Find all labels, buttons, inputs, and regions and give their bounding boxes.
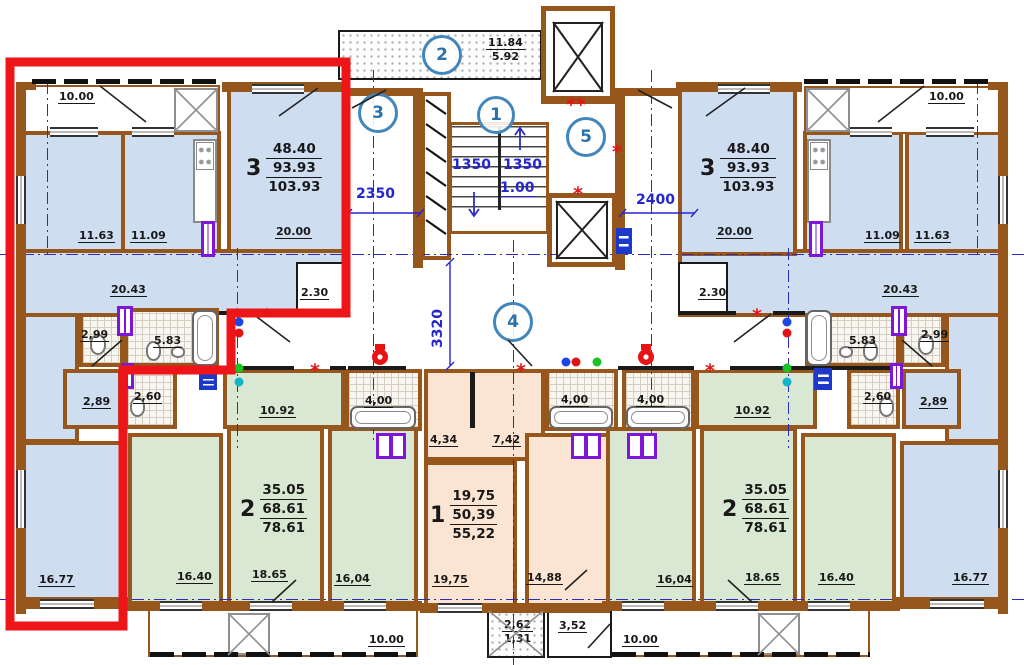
stair-dimension: 1350: [503, 157, 542, 173]
room-label: 20.43: [882, 283, 919, 297]
bathtub-icon-right2: [626, 406, 690, 429]
bathtub-icon-right: [806, 310, 832, 366]
right3-balcony-wardrobe: [806, 88, 850, 132]
room-label: 10.92: [259, 404, 296, 418]
star-marker: *: [752, 311, 762, 321]
window: [50, 127, 98, 137]
star-marker: *: [705, 366, 715, 376]
partition-left-lower-a: [124, 366, 294, 370]
hydrant-icon: [372, 344, 388, 365]
double-star-marker: **: [566, 100, 586, 110]
floor-plan: 10.00 11.63 11.09 20.00 20.43 2.30 2,99 …: [0, 0, 1024, 665]
star-marker: *: [573, 189, 583, 199]
room-label: 5.83: [848, 334, 877, 348]
window: [16, 470, 26, 528]
apartment-summary-left2: 2 35.05 68.61 78.61: [240, 481, 307, 537]
star-marker: *: [310, 366, 320, 376]
room-label: 10.92: [734, 404, 771, 418]
window: [998, 470, 1008, 528]
partition-right-vestibule-b: [678, 311, 736, 315]
door-marker: [571, 433, 601, 459]
window: [40, 599, 94, 609]
room-label: 7,42: [492, 433, 521, 447]
partition-right-lower-b: [678, 366, 694, 370]
dimension-3320: 3320: [430, 309, 446, 348]
door-marker: [117, 306, 133, 336]
left3-vestibule: [219, 313, 346, 370]
room-label: 18.65: [251, 568, 288, 582]
window: [718, 84, 770, 94]
apartment-summary-right2: 2 35.05 68.61 78.61: [722, 481, 789, 537]
axis-line-vertical-5: [788, 248, 789, 448]
core-wall-top-right: [615, 88, 681, 96]
awning-top-left: [32, 79, 220, 84]
window: [160, 601, 202, 611]
bathtub-icon-left: [192, 310, 218, 366]
room-label: 4,34: [429, 433, 458, 447]
outer-wall-left: [16, 82, 26, 614]
stair-level-mark: 1.00: [500, 180, 535, 197]
window: [132, 127, 174, 137]
axis-line-vertical-7: [977, 82, 978, 254]
bathtub-icon-center: [549, 406, 613, 429]
section-circle-1: 1: [477, 96, 515, 134]
room-label: 10.00: [58, 90, 95, 104]
bathtub-icon-left2: [350, 406, 416, 429]
room-label: 16.77: [952, 571, 989, 585]
room-label: 4,00: [560, 393, 589, 407]
room-label: 11.63: [914, 229, 951, 243]
room-label: 2,99: [80, 328, 109, 342]
room-label: 2,60: [133, 390, 162, 404]
room-label: 11.09: [130, 229, 167, 243]
partition-left-vestibule-a: [219, 311, 251, 315]
room-label: 3,52: [558, 619, 587, 633]
small-balcony-label: 2,62 1,31: [502, 618, 533, 645]
window: [16, 176, 26, 224]
door-marker: [121, 363, 134, 389]
partition-left-lower-b: [330, 366, 346, 370]
dimension-2400: 2400: [636, 192, 675, 208]
dimension-2350: 2350: [356, 186, 395, 202]
room-label: 20.00: [716, 225, 753, 239]
star-marker: *: [516, 366, 526, 376]
window: [850, 127, 892, 137]
star-marker: *: [262, 311, 272, 321]
section-circle-2: 2: [422, 35, 462, 75]
stair-dimension: 1350: [452, 157, 491, 173]
room-label: 10.00: [368, 633, 405, 647]
room-label: 2,60: [863, 390, 892, 404]
window: [716, 601, 758, 611]
room-label: 11.09: [864, 229, 901, 243]
center1-entry-vestibule: [547, 609, 612, 658]
window: [998, 176, 1008, 224]
room-label: 16.77: [38, 573, 75, 587]
room-label: 2.30: [300, 286, 329, 300]
door-marker: [627, 433, 657, 459]
door-marker: [890, 363, 903, 389]
right3-vestibule: [678, 313, 805, 370]
axis-line-vertical-3: [651, 70, 652, 440]
door-marker: [201, 221, 215, 257]
bottom-balcony-left-wardrobe: [228, 613, 270, 655]
axis-line-vertical-4: [237, 248, 238, 448]
panel-icon: [814, 368, 832, 390]
panel-icon: [616, 228, 632, 254]
room-label: 2.30: [698, 286, 727, 300]
room-label: 18.65: [744, 571, 781, 585]
room-label: 2,89: [919, 395, 948, 409]
partition-center-left: [348, 366, 406, 370]
awning-bottom-left: [150, 652, 416, 657]
section-circle-5: 5: [566, 117, 606, 157]
room-label: 16.40: [818, 571, 855, 585]
stair-divider: [498, 126, 501, 210]
elevator-bottom-icon: [556, 201, 608, 259]
axis-line-vertical-6: [47, 82, 48, 254]
room-label: 16,04: [656, 573, 693, 587]
stove-icon-right: [810, 142, 828, 170]
window: [252, 84, 304, 94]
section-circle-4: 4: [493, 302, 533, 342]
window: [930, 599, 984, 609]
apartment-summary-left3: 3 48.40 93.93 103.93: [246, 140, 322, 196]
room-label: 16,04: [334, 572, 371, 586]
center1-hall-partition: [470, 372, 475, 428]
room-label: 16.40: [176, 570, 213, 584]
awning-top-right: [804, 79, 992, 84]
partition-right-vestibule-a: [773, 311, 805, 315]
partition-left-vestibule-b: [288, 311, 346, 315]
window: [438, 603, 482, 613]
panel-icon: [199, 374, 217, 390]
apartment-summary-center1: 1 19,75 50,39 55,22: [430, 487, 497, 543]
awning-bottom-right: [612, 652, 870, 657]
room-label: 14,88: [526, 571, 563, 585]
apartment-summary-right3: 3 48.40 93.93 103.93: [700, 140, 776, 196]
room-label: 2,89: [82, 395, 111, 409]
room-label: 10.00: [928, 90, 965, 104]
window: [344, 601, 386, 611]
upper-balcony-label: 11.84 5.92: [486, 36, 525, 63]
room-label: 19,75: [432, 573, 469, 587]
window: [622, 601, 664, 611]
room-label: 10.00: [622, 633, 659, 647]
star-marker: *: [612, 147, 622, 157]
room-label: 5.83: [153, 334, 182, 348]
core-wall-left: [413, 88, 423, 268]
room-label: 11.63: [78, 229, 115, 243]
room-label: 20.00: [275, 225, 312, 239]
elevator-top-icon: [553, 22, 603, 92]
outer-wall-right: [998, 82, 1008, 614]
window: [926, 127, 974, 137]
section-circle-3: 3: [358, 93, 398, 133]
window: [808, 601, 850, 611]
left2-corridor: [223, 369, 345, 429]
window: [250, 601, 292, 611]
bottom-balcony-right-wardrobe: [758, 613, 800, 655]
left3-balcony-wardrobe: [174, 88, 218, 132]
door-marker: [809, 221, 823, 257]
room-label: 4,00: [364, 394, 393, 408]
stove-icon-left: [196, 142, 214, 170]
room-label: 2,99: [920, 328, 949, 342]
room-label: 4,00: [636, 393, 665, 407]
room-label: 20.43: [110, 283, 147, 297]
door-marker: [891, 306, 907, 336]
door-marker: [376, 433, 406, 459]
vent-shaft: [421, 92, 451, 260]
axis-line-horizontal-upper: [0, 254, 1024, 255]
axis-line-horizontal-lower: [0, 599, 1024, 600]
partition-center-right: [618, 366, 678, 370]
